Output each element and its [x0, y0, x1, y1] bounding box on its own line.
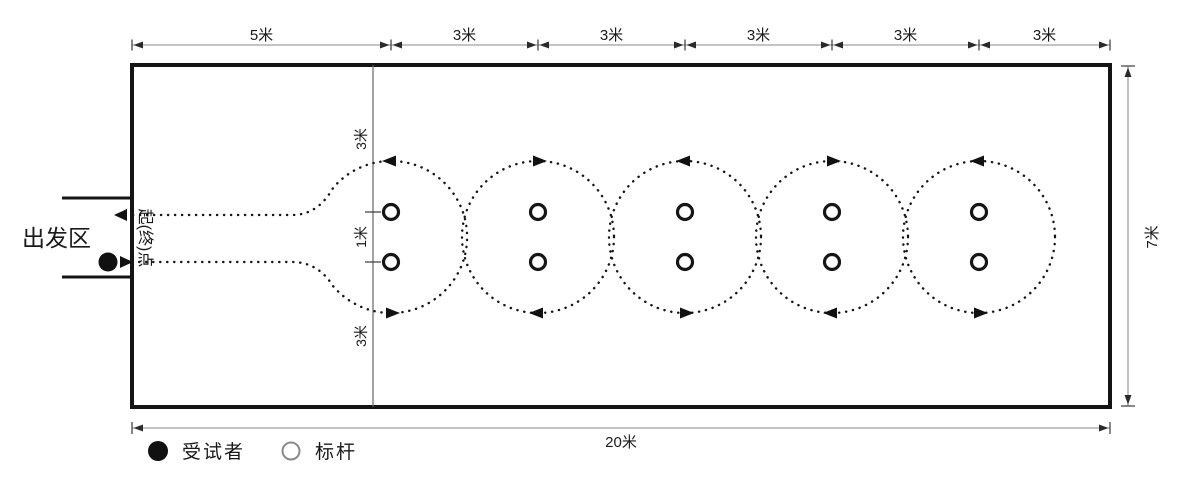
pole-marker [384, 255, 399, 270]
pole-marker [384, 205, 399, 220]
right-dim-arrow-bottom [1125, 395, 1132, 405]
exit-arrow-icon [114, 209, 127, 221]
dim-arrow-icon [687, 42, 697, 49]
right-dimension-label: 7米 [1144, 225, 1161, 248]
dim-arrow-icon [380, 42, 390, 49]
course-diagram: 3米 1米 3米 出发区 起(终)点 5米3米3米3米3米3米 20米 7米 [0, 0, 1183, 483]
pole-marker [531, 255, 546, 270]
dim-arrow-icon [527, 42, 537, 49]
pole-marker [972, 205, 987, 220]
legend-pole-label: 标杆 [315, 441, 357, 463]
bottom-dimension: 20米 [132, 422, 1110, 451]
field-rect [132, 65, 1110, 407]
dim-arrow-icon [834, 42, 844, 49]
legend-subject-label: 受试者 [182, 441, 245, 463]
dim-arrow-icon [393, 42, 403, 49]
pole-marker [678, 205, 693, 220]
start-finish-label: 起(终)点 [136, 209, 154, 268]
top-dimension-label: 3米 [600, 27, 623, 44]
right-dim-arrow-top [1125, 68, 1132, 78]
pole-marker [531, 205, 546, 220]
pole-marker [972, 255, 987, 270]
dim-arrow-icon [821, 42, 831, 49]
top-dimension-label: 3米 [747, 27, 770, 44]
subject-dot [99, 253, 118, 272]
start-area: 出发区 [22, 198, 133, 277]
dim-arrow-icon [968, 42, 978, 49]
pole-marker [825, 205, 840, 220]
dim-arrow-icon [540, 42, 550, 49]
pole-marker [678, 255, 693, 270]
legend-pole-circle [283, 443, 300, 460]
bottom-dim-arrow-right [1099, 425, 1109, 432]
start-line-dim-middle: 1米 [353, 226, 369, 248]
dim-arrow-icon [134, 42, 144, 49]
bottom-dim-arrow-left [134, 425, 144, 432]
dim-arrow-icon [674, 42, 684, 49]
start-line-dim-top: 3米 [353, 128, 369, 150]
top-dimension-label: 3米 [894, 27, 917, 44]
bottom-dimension-label: 20米 [605, 434, 637, 451]
legend-subject-dot [148, 441, 168, 461]
top-dimension-label: 3米 [453, 27, 476, 44]
right-dimension: 7米 [1121, 66, 1161, 406]
dim-arrow-icon [981, 42, 991, 49]
diagram-stage: 3米 1米 3米 出发区 起(终)点 5米3米3米3米3米3米 20米 7米 [0, 0, 1183, 483]
top-dimension-label: 3米 [1033, 27, 1056, 44]
top-dimension-label: 5米 [250, 27, 273, 44]
dim-arrow-icon [1099, 42, 1109, 49]
pole-marker [825, 255, 840, 270]
legend: 受试者 标杆 [148, 441, 357, 463]
top-dimension-layer: 5米3米3米3米3米3米 [132, 27, 1110, 51]
start-area-label: 出发区 [22, 225, 91, 251]
start-line-dim-bottom: 3米 [353, 325, 369, 347]
